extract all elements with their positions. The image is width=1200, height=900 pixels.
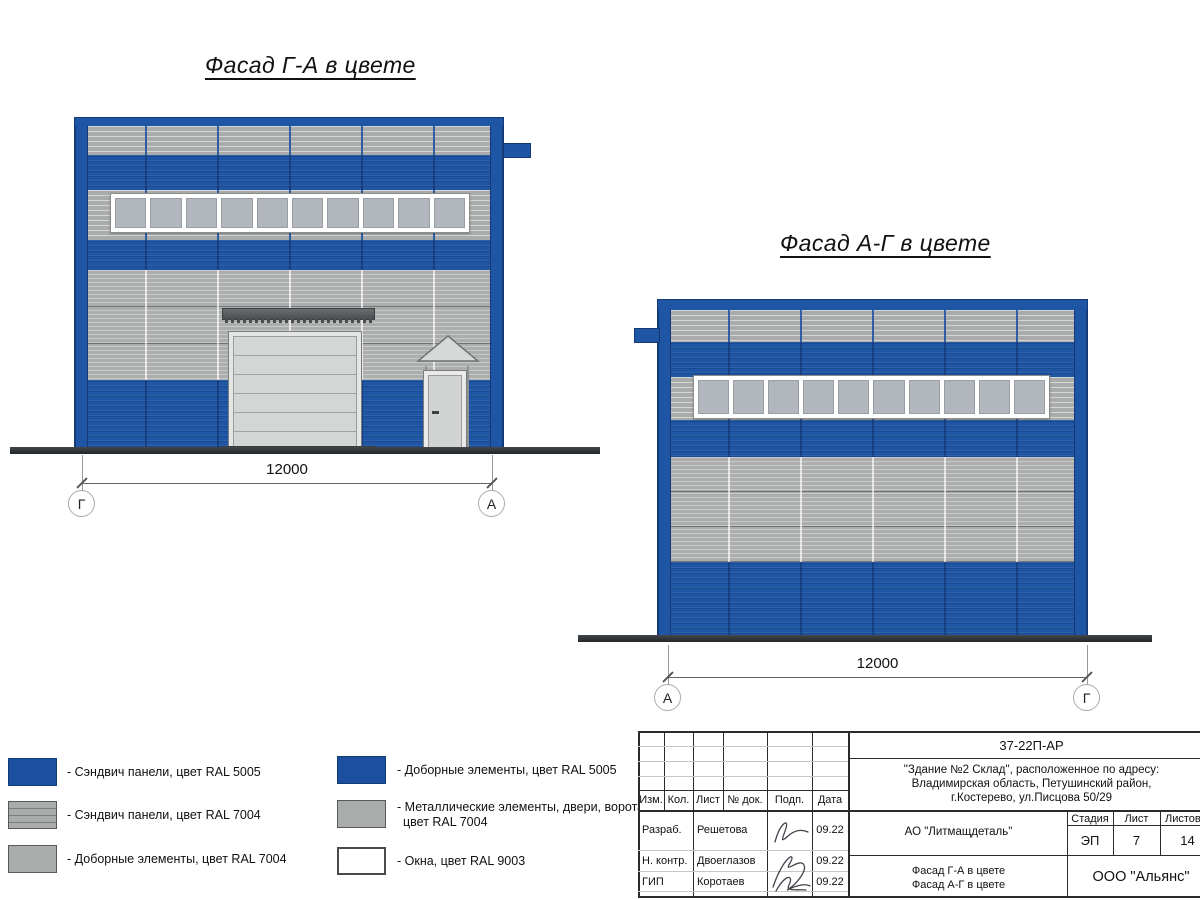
sheet-title: Фасад А-Г в цвете [850,879,1067,891]
col-header-data: Дата [812,794,848,806]
ground-line-left [10,447,600,454]
dimension-value: 12000 [668,655,1087,672]
facade-left-drawing [75,118,503,450]
legend-swatch-blue [337,756,386,784]
signer-date: 09.22 [812,824,848,836]
legend-label: - Сэндвич панели, цвет RAL 7004 [67,808,261,822]
blue-panel-band [75,240,503,270]
window-pane [803,380,834,414]
sheets-total: 14 [1160,833,1200,848]
gate-canopy [222,308,375,320]
grid-line [1067,825,1200,826]
signer-role: Н. контр. [642,855,687,867]
window-pane [363,198,394,228]
signer-name: Двоеглазов [697,855,755,867]
gate-leaf [233,336,357,447]
signer-date: 09.22 [812,855,848,867]
window-pane [909,380,940,414]
grid-line [638,891,848,892]
window-pane [733,380,764,414]
door-handle [432,411,439,414]
grid-line [638,790,848,791]
corner-trim [490,126,503,450]
legend-swatch-gray [8,845,57,873]
signature-scribble [770,815,812,849]
grid-line [638,731,640,898]
sheet-header: Лист [1113,813,1160,825]
window-pane [434,198,465,228]
window-pane [186,198,217,228]
sheet-number: 7 [1113,833,1160,848]
grid-line [638,850,848,851]
design-org: ООО "Альянс" [1067,869,1200,885]
legend-label: цвет RAL 7004 [403,815,488,829]
ribbon-window [693,375,1050,419]
axis-bubble: Г [1073,684,1100,711]
window-pane [327,198,358,228]
dimension-line [668,677,1087,678]
signer-name: Решетова [697,824,747,836]
corner-trim [1074,310,1087,640]
gutter-outlet [634,328,660,343]
doc-number: 37-22П-АР [848,738,1200,753]
sheet-title: Фасад Г-А в цвете [850,865,1067,877]
client-org: АО "Литмащдеталь" [850,826,1067,838]
facade-left-title: Фасад Г-А в цвете [205,52,416,79]
col-header-ndok: № док. [723,794,767,806]
address-line: Владимирская область, Петушинский район, [848,778,1200,790]
grid-line [638,761,848,762]
window-pane [292,198,323,228]
corner-trim [658,310,671,640]
window-pane [115,198,146,228]
stage-header: Стадия [1067,813,1113,825]
window-pane [944,380,975,414]
dimension-value: 12000 [82,461,492,478]
blue-panel-band [658,420,1087,457]
signer-role: ГИП [642,876,664,888]
address-line: г.Костерево, ул.Писцова 50/29 [848,792,1200,804]
legend-label: - Доборные элементы, цвет RAL 7004 [67,852,287,866]
blue-base-band [658,562,1087,640]
gray-panel-band [75,126,503,155]
gray-panel-band [658,310,1087,342]
grid-line [638,746,848,747]
signer-name: Коротаев [697,876,745,888]
legend-label: - Сэндвич панели, цвет RAL 5005 [67,765,261,779]
axis-bubble: Г [68,490,95,517]
grid-line [638,896,1200,898]
window-pane [873,380,904,414]
signer-date: 09.22 [812,876,848,888]
gutter-outlet [503,143,531,158]
grid-line [638,871,848,872]
facade-right-title: Фасад А-Г в цвете [780,230,991,257]
signature-scribble [766,845,814,895]
ground-line-right [578,635,1152,642]
stage-value: ЭП [1067,833,1113,848]
door-gable-canopy [416,333,480,369]
grid-line [693,731,694,898]
legend-label: - Окна, цвет RAL 9003 [397,854,525,868]
window-pane [221,198,252,228]
title-block: Изм. Кол. Лист № док. Подп. Дата Разраб.… [638,731,1200,898]
window-pane [838,380,869,414]
legend-swatch-gray-ribbed [8,801,57,829]
corner-trim [75,126,88,450]
grid-line [638,776,848,777]
col-header-podp: Подп. [767,794,812,806]
window-pane [150,198,181,228]
signer-role: Разраб. [642,824,682,836]
legend-label: - Доборные элементы, цвет RAL 5005 [397,763,617,777]
canopy-post [467,366,469,450]
col-header-kol: Кол. [664,794,693,806]
grid-line [848,855,1200,856]
col-header-list: Лист [693,794,723,806]
blue-panel-band [75,155,503,190]
window-pane [1014,380,1045,414]
legend-swatch-white [337,847,386,875]
window-pane [698,380,729,414]
entrance-door [423,370,467,450]
blue-panel-band [658,342,1087,377]
grid-line [638,810,1200,812]
window-pane [257,198,288,228]
sheets-header: Листов [1165,813,1200,825]
dimension-line [82,483,492,484]
drawing-sheet: { "colors": { "ral5005_blue": "#1E55A4",… [0,0,1200,900]
col-header-izm: Изм. [638,794,664,806]
sectional-gate [228,331,362,450]
window-pane [979,380,1010,414]
legend-label: - Металлические элементы, двери, ворота, [397,800,648,814]
address-line: "Здание №2 Склад", расположенное по адре… [848,764,1200,776]
facade-right-drawing [658,300,1087,640]
extension-line [1087,645,1088,687]
ribbon-window [110,193,470,233]
axis-bubble: А [654,684,681,711]
window-pane [768,380,799,414]
legend-swatch-blue [8,758,57,786]
grid-line [848,758,1200,759]
legend-swatch-gray [337,800,386,828]
gray-wall-field [658,457,1087,562]
window-pane [398,198,429,228]
axis-bubble: А [478,490,505,517]
